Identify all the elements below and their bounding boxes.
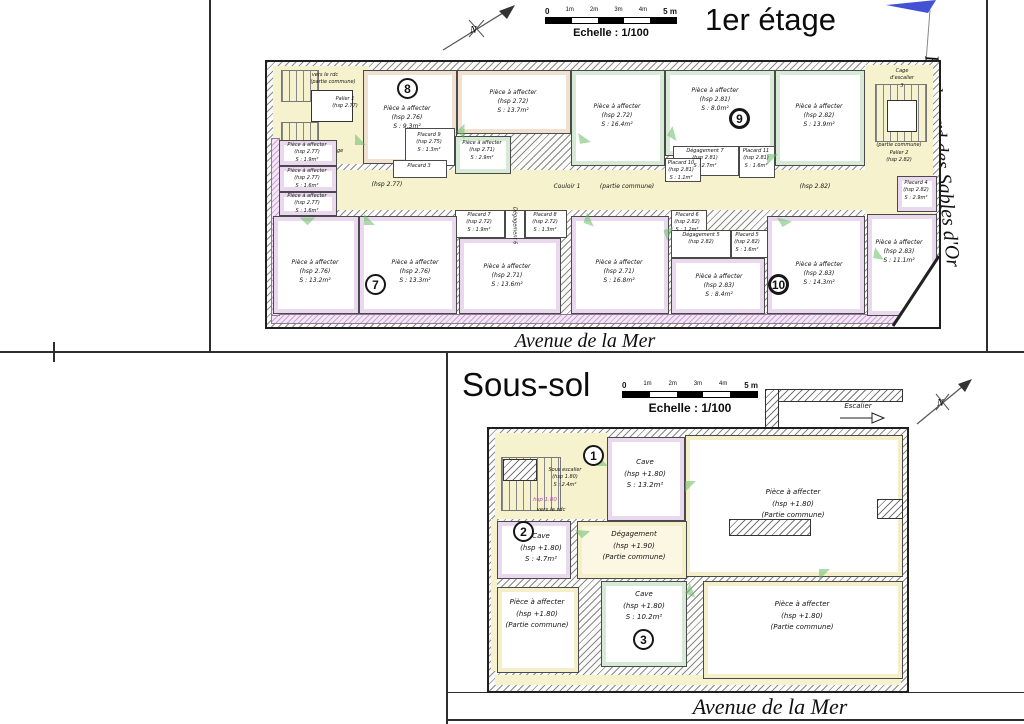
label-line: (hsp 2.77) xyxy=(287,175,326,182)
scale-tick: 0 xyxy=(545,7,549,16)
scale-ticks: 0 1m 2m 3m 4m 5 m xyxy=(622,381,758,390)
label-line: d'escalier xyxy=(890,75,914,82)
label-line: Pièce à affecter xyxy=(770,599,833,611)
label-line: Palier 2 xyxy=(886,150,912,157)
room-label: Placard 9 (hsp 2.75) S : 1.3m² xyxy=(416,132,442,154)
room-badge-8: 8 xyxy=(397,78,418,99)
label-line: S : 2.9m² xyxy=(462,155,501,162)
street-avenue-floor1: Avenue de la Mer xyxy=(460,330,710,353)
label-line: Placard 7 xyxy=(466,212,492,219)
label-line: S : 1.6m² xyxy=(734,247,760,254)
stair-right-common: (partie commune) xyxy=(876,142,921,149)
room-label: Pièce à affecter (hsp 2.76) S : 9.3m² xyxy=(384,104,431,131)
label-line: (hsp +1.80) xyxy=(520,543,562,555)
label-line: S : 13.3m² xyxy=(392,276,439,285)
scale-ticks: 0 1m 2m 3m 4m 5 m xyxy=(545,7,677,16)
street-avenue-basement: Avenue de la Mer xyxy=(640,694,900,720)
basement-title: Sous-sol xyxy=(462,366,590,404)
label-line: Pièce à affecter xyxy=(484,262,531,271)
label-line: Placard 8 xyxy=(532,212,558,219)
page: 1er étage 0 1m 2m 3m 4m 5 m Echelle : 1/… xyxy=(0,0,1024,724)
label-line: Pièce à affecter xyxy=(696,272,743,281)
room-label: Pièce à affecter (hsp 2.71) S : 16.8m² xyxy=(596,258,643,285)
label-line: Cave xyxy=(623,589,665,601)
room-label: Placard 8 (hsp 2.72) S : 1.3m² xyxy=(532,212,558,234)
label-line: (Partie commune) xyxy=(770,622,833,634)
label-line: S : 2.4m² xyxy=(548,482,581,489)
label-line: (hsp +1.80) xyxy=(770,611,833,623)
floor1-scale-bar: 0 1m 2m 3m 4m 5 m Echelle : 1/100 xyxy=(545,7,677,39)
label-line: Cage xyxy=(890,68,914,75)
label-line: (hsp 1.80) xyxy=(548,474,581,481)
label-line: (hsp 2.72) xyxy=(594,111,641,120)
room-label: Pièce à affecter (hsp 2.72) S : 13.7m² xyxy=(490,88,537,115)
divider-tick xyxy=(53,342,55,362)
label-line: S : 14.3m² xyxy=(796,278,843,287)
label-line: S : 9.3m² xyxy=(384,122,431,131)
door-swing-icon xyxy=(685,481,696,492)
room-label: Pièce à affecter (hsp 2.76) S : 13.3m² xyxy=(392,258,439,285)
room-badge-7: 7 xyxy=(365,274,386,295)
label-line: (hsp 2.82) xyxy=(903,187,929,194)
label-line: Dégagement 6 xyxy=(510,207,517,244)
room-label: Dégagement 5 (hsp 2.82) xyxy=(682,232,719,247)
label-line: Placard 10 xyxy=(668,160,694,167)
door-swing-icon xyxy=(364,214,375,225)
label-line: S : 1.6m² xyxy=(287,183,326,190)
scale-tick: 3m xyxy=(694,381,702,390)
door-swing-icon xyxy=(355,134,366,145)
scale-tick: 2m xyxy=(669,381,677,390)
label-line: (hsp 2.82) xyxy=(796,111,843,120)
room-label: Placard 6 (hsp 2.82) S : 1.2m² xyxy=(674,212,700,234)
stair-landing-right xyxy=(887,100,917,132)
escalier-arrow-icon xyxy=(838,411,886,425)
exterior-wall xyxy=(765,389,903,402)
label-line: Placard 9 xyxy=(416,132,442,139)
label-line: Pièce à affecter xyxy=(287,142,326,149)
corridor-hsp-right: (hsp 2.82) xyxy=(800,182,831,191)
room-label: Placard 3 xyxy=(407,163,430,170)
label-line: (hsp 2.83) xyxy=(796,269,843,278)
label-line: Dégagement 5 xyxy=(682,232,719,239)
north-letter: N xyxy=(936,398,945,409)
room-label: Pièce à affecter (hsp 2.77) S : 1.9m² xyxy=(287,142,326,164)
label-line: (Partie commune) xyxy=(602,552,665,564)
scale-bar-graphic xyxy=(622,391,758,398)
scale-tick: 5 m xyxy=(663,7,677,16)
floor-plan-first-floor: vers le rdc (partie commune) Palier 1 (h… xyxy=(265,60,941,329)
label-line: Pièce à affecter xyxy=(392,258,439,267)
room-label: Pièce à affecter (hsp 2.81) S : 8.0m² xyxy=(692,86,739,113)
palier2-label: Palier 2 (hsp 2.82) xyxy=(886,150,912,165)
label-line: (hsp 2.82) xyxy=(886,157,912,164)
room-label: Dégagement 6 xyxy=(510,207,517,244)
room-label: Pièce à affecter (hsp +1.80) (Partie com… xyxy=(505,597,568,632)
room-label: Dégagement (hsp +1.90) (Partie commune) xyxy=(602,529,665,564)
scale-tick: 4m xyxy=(639,7,647,16)
room-label: Pièce à affecter (hsp +1.80) (Partie com… xyxy=(770,599,833,634)
scale-label: Echelle : 1/100 xyxy=(622,401,758,415)
label-line: (hsp 2.83) xyxy=(696,281,743,290)
corridor-name: Couloir 1 xyxy=(554,182,581,191)
label-line: S : 8.0m² xyxy=(692,104,739,113)
stair-note-common: (partie commune) xyxy=(310,79,355,86)
label-line: S : 4.7m² xyxy=(520,554,562,566)
room-label: Pièce à affecter (hsp +1.80) (Partie com… xyxy=(761,487,824,522)
room-label: Cave (hsp +1.80) S : 4.7m² xyxy=(520,531,562,566)
label-line: Pièce à affecter xyxy=(462,140,501,147)
label-line: Pièce à affecter xyxy=(292,258,339,267)
label-line: S : 2.9m² xyxy=(903,195,929,202)
scale-tick: 1m xyxy=(566,7,574,16)
label-line: (hsp +1.80) xyxy=(505,609,568,621)
exterior-wall-stub xyxy=(765,389,779,430)
label-line: (hsp 2.77) xyxy=(287,200,326,207)
label-line: (hsp 2.81) xyxy=(668,167,694,174)
room-badge-3: 3 xyxy=(633,629,654,650)
label-line: Pièce à affecter xyxy=(796,102,843,111)
label-line: (hsp 2.77) xyxy=(287,149,326,156)
label-line: Dégagement xyxy=(602,529,665,541)
label-line: Placard 6 xyxy=(674,212,700,219)
room-badge-1: 1 xyxy=(583,445,604,466)
label-line: (hsp 2.72) xyxy=(490,97,537,106)
label-line: (hsp 2.76) xyxy=(384,113,431,122)
stair-note-dir: vers le rdc xyxy=(537,507,566,513)
escalier-label: Escalier xyxy=(844,402,871,410)
label-line: Dégagement 7 xyxy=(686,148,723,155)
label-line: Pièce à affecter xyxy=(287,168,326,175)
corridor-common: (partie commune) xyxy=(600,182,654,191)
room-label: Cave (hsp +1.80) S : 10.2m² xyxy=(623,589,665,624)
label-line: (hsp 2.83) xyxy=(876,247,923,256)
label-line: Palier 1 xyxy=(332,96,358,103)
label-line: (hsp 2.82) xyxy=(674,219,700,226)
label-line: Pièce à affecter xyxy=(692,86,739,95)
scale-tick: 2m xyxy=(590,7,598,16)
basement-scale-bar: 0 1m 2m 3m 4m 5 m Echelle : 1/100 xyxy=(622,381,758,415)
label-line: (hsp 2.71) xyxy=(462,147,501,154)
room-label: Sous escalier (hsp 1.80) S : 2.4m² xyxy=(548,467,581,489)
label-line: S : 8.4m² xyxy=(696,290,743,299)
label-line: Sous escalier xyxy=(548,467,581,474)
label-line: (Partie commune) xyxy=(505,620,568,632)
label-line: Placard 4 xyxy=(903,180,929,187)
divider-vertical-left xyxy=(209,0,211,353)
room-label: Pièce à affecter (hsp 2.83) S : 11.1m² xyxy=(876,238,923,265)
door-swing-icon xyxy=(819,569,830,580)
north-arrow-icon: N xyxy=(437,0,522,55)
label-line: Pièce à affecter xyxy=(287,193,326,200)
room-label: Pièce à affecter (hsp 2.76) S : 13.2m² xyxy=(292,258,339,285)
door-swing-icon xyxy=(685,583,700,598)
label-line: (hsp +1.80) xyxy=(623,601,665,613)
room-label: Pièce à affecter (hsp 2.71) S : 2.9m² xyxy=(462,140,501,162)
floor1-title: 1er étage xyxy=(705,2,836,38)
label-line: Pièce à affecter xyxy=(594,102,641,111)
label-line: S : 1.9m² xyxy=(287,157,326,164)
wall-band-bottom xyxy=(271,314,935,324)
interior-wall-stub xyxy=(877,499,903,519)
label-line: S : 1.3m² xyxy=(416,147,442,154)
room-label: Pièce à affecter (hsp 2.83) S : 8.4m² xyxy=(696,272,743,299)
label-line: S : 10.2m² xyxy=(623,612,665,624)
room-label: Pièce à affecter (hsp 2.77) S : 1.6m² xyxy=(287,168,326,190)
label-line: Pièce à affecter xyxy=(384,104,431,113)
label-line: S : 16.8m² xyxy=(596,276,643,285)
room-label: Pièce à affecter (hsp 2.72) S : 16.4m² xyxy=(594,102,641,129)
room-9 xyxy=(665,70,775,156)
room-label: Pièce à affecter (hsp 2.71) S : 13.6m² xyxy=(484,262,531,289)
corridor-hsp-left: (hsp 2.77) xyxy=(372,180,403,189)
label-line: S : 1.1m² xyxy=(668,175,694,182)
label-line: S : 1.9m² xyxy=(466,227,492,234)
stair-note-hsp: hsp 1.80 xyxy=(533,497,557,503)
room-label: Cave (hsp +1.80) S : 13.2m² xyxy=(624,457,666,492)
label-line: Pièce à affecter xyxy=(596,258,643,267)
room-label: Pièce à affecter (hsp 2.83) S : 14.3m² xyxy=(796,260,843,287)
cage-escalier-label: Cage d'escalier 3 xyxy=(890,68,914,90)
label-line: S : 16.4m² xyxy=(594,120,641,129)
label-line: S : 13.9m² xyxy=(796,120,843,129)
room-11-1 xyxy=(867,214,937,316)
scale-bar-graphic xyxy=(545,17,677,24)
room-label: Pièce à affecter (hsp 2.77) S : 1.6m² xyxy=(287,193,326,215)
room-label: Pièce à affecter (hsp 2.82) S : 13.9m² xyxy=(796,102,843,129)
label-line: S : 13.2m² xyxy=(292,276,339,285)
label-line: (hsp 2.76) xyxy=(392,267,439,276)
label-line: Cave xyxy=(520,531,562,543)
label-line: (hsp 2.71) xyxy=(484,271,531,280)
floor-plan-basement: 1 2 3 Sous escalier (hsp 1.80) S : 2.4m²… xyxy=(487,427,909,693)
door-swing-icon xyxy=(578,131,591,144)
label-line: Placard 3 xyxy=(407,163,430,170)
label-line: Pièce à affecter xyxy=(796,260,843,269)
label-line: S : 1.6m² xyxy=(287,208,326,215)
room-label: Placard 4 (hsp 2.82) S : 2.9m² xyxy=(903,180,929,202)
divider-vertical-right xyxy=(986,0,988,353)
label-line: (Partie commune) xyxy=(761,510,824,522)
label-line: (hsp 2.81) xyxy=(692,95,739,104)
label-line: S : 1.3m² xyxy=(532,227,558,234)
label-line: Pièce à affecter xyxy=(761,487,824,499)
north-letter: N xyxy=(469,25,478,36)
label-line: S : 1.6m² xyxy=(743,163,769,170)
scale-tick: 4m xyxy=(719,381,727,390)
divider-vertical-basement xyxy=(446,351,448,724)
label-line: (hsp 2.77) xyxy=(332,103,358,110)
scale-tick: 1m xyxy=(643,381,651,390)
label-line: (hsp 2.76) xyxy=(292,267,339,276)
label-line: (hsp +1.90) xyxy=(602,541,665,553)
label-line: (hsp 2.82) xyxy=(734,239,760,246)
label-line: Pièce à affecter xyxy=(490,88,537,97)
scale-label: Echelle : 1/100 xyxy=(545,27,677,39)
scale-tick: 5 m xyxy=(744,381,758,390)
label-line: Placard 5 xyxy=(734,232,760,239)
palier1-label: Palier 1 (hsp 2.77) xyxy=(332,96,358,111)
label-line: (hsp +1.80) xyxy=(761,499,824,511)
label-line: (hsp +1.80) xyxy=(624,469,666,481)
room-label: Placard 7 (hsp 2.72) S : 1.9m² xyxy=(466,212,492,234)
label-line: (hsp 2.82) xyxy=(682,239,719,246)
label-line: Pièce à affecter xyxy=(876,238,923,247)
label-line: Placard 11 xyxy=(743,148,769,155)
understair-storage xyxy=(503,459,537,481)
room-label: Placard 5 (hsp 2.82) S : 1.6m² xyxy=(734,232,760,254)
room-label: Placard 11 (hsp 2.81) S : 1.6m² xyxy=(743,148,769,170)
room-label: Placard 10 (hsp 2.81) S : 1.1m² xyxy=(668,160,694,182)
north-arrow-icon: N xyxy=(912,374,977,429)
label-line: (hsp 2.72) xyxy=(466,219,492,226)
label-line: Pièce à affecter xyxy=(505,597,568,609)
label-line: Cave xyxy=(624,457,666,469)
label-line: S : 13.7m² xyxy=(490,106,537,115)
label-line: S : 13.2m² xyxy=(624,480,666,492)
label-line: S : 11.1m² xyxy=(876,256,923,265)
label-line: (hsp 2.75) xyxy=(416,139,442,146)
label-line: S : 13.6m² xyxy=(484,280,531,289)
scale-tick: 3m xyxy=(614,7,622,16)
room-badge-10: 10 xyxy=(768,274,789,295)
label-line: 3 xyxy=(890,83,914,90)
label-line: (hsp 2.81) xyxy=(743,155,769,162)
scale-tick: 0 xyxy=(622,381,626,390)
label-line: (hsp 2.71) xyxy=(596,267,643,276)
label-line: (hsp 2.72) xyxy=(532,219,558,226)
